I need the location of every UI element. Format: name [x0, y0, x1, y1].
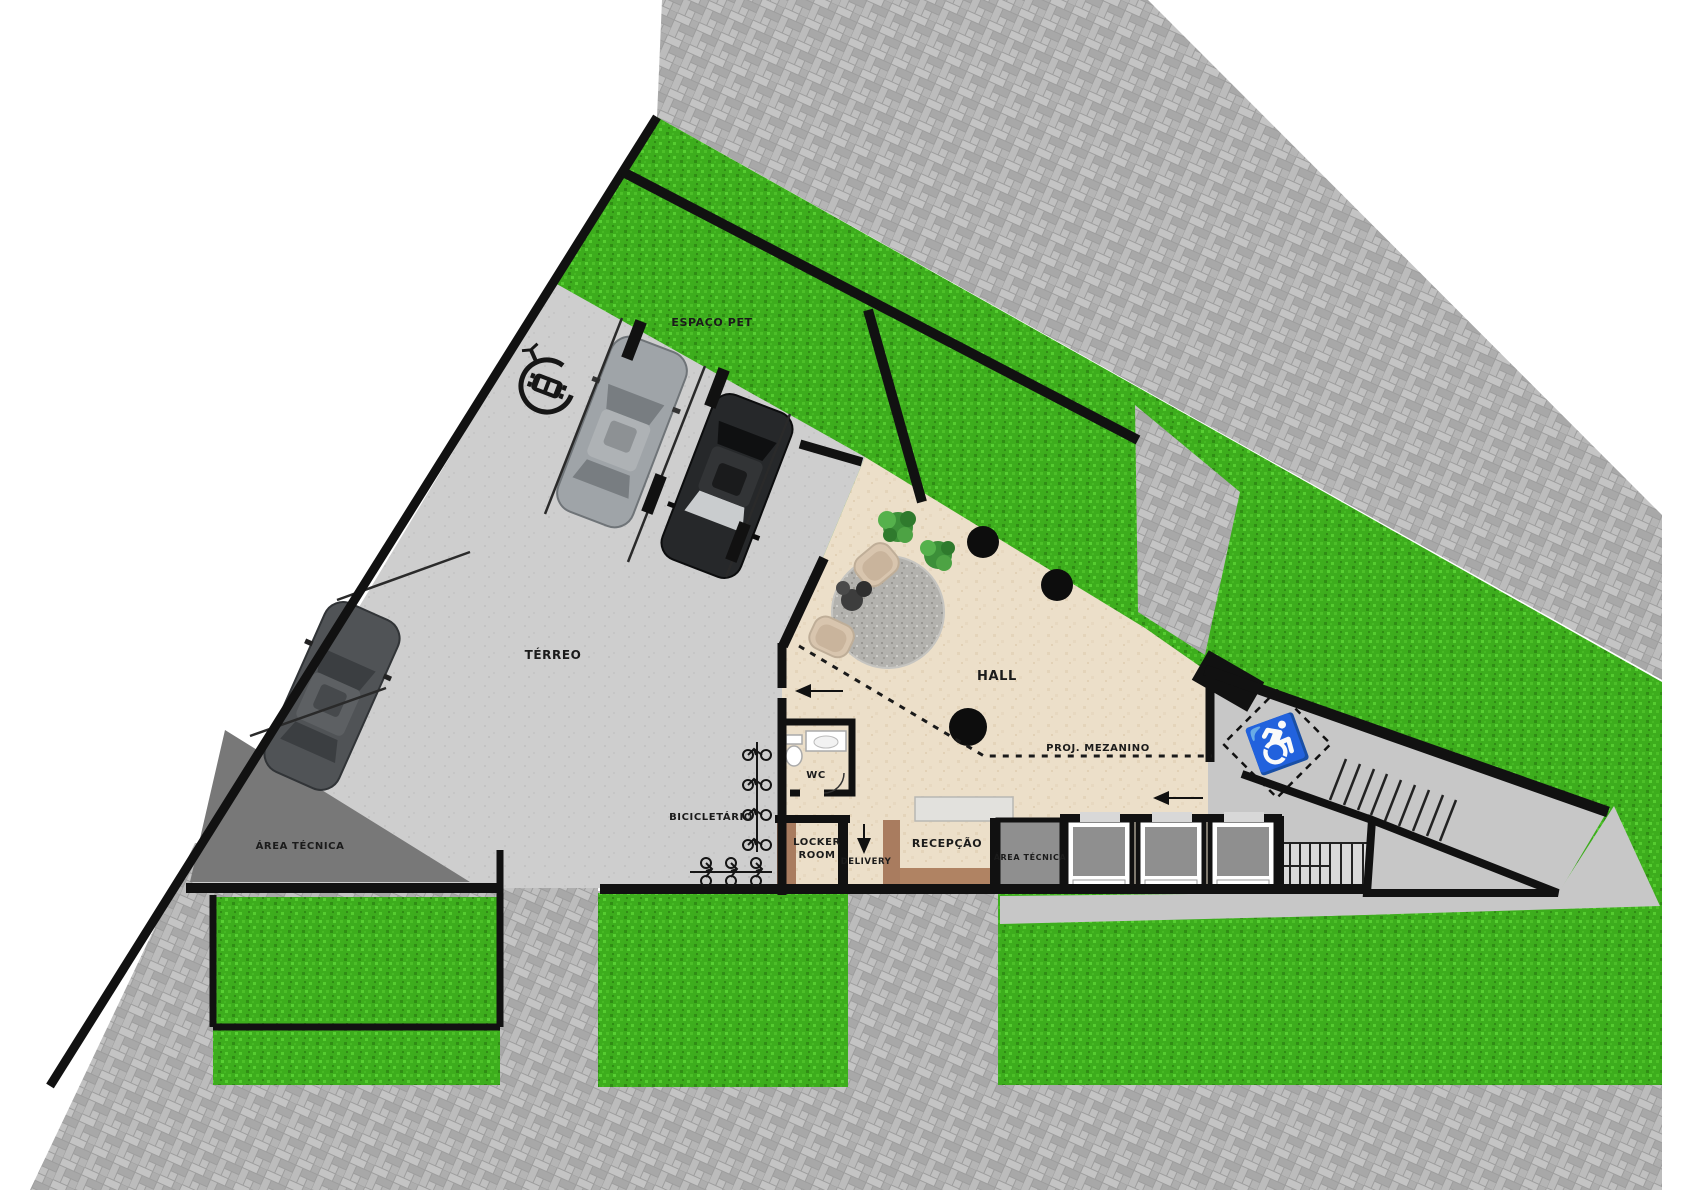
- grass-patch-left: [213, 897, 500, 1085]
- label-area-tecnica-right: ÁREA TÉCNICA: [994, 851, 1067, 862]
- floor-plan-canvas: ♿: [0, 0, 1684, 1190]
- elevator: [1138, 820, 1204, 890]
- label-recepcao: RECEPÇÃO: [912, 837, 982, 850]
- wall-bottom-left: [186, 883, 497, 893]
- elevator: [1210, 820, 1276, 890]
- elevator-bank: [1060, 812, 1282, 890]
- elevator-door-opening: [1152, 812, 1192, 822]
- reception-counter: [915, 797, 1013, 821]
- grass-patch-right: [1000, 908, 1662, 1085]
- label-espaco-pet: ESPAÇO PET: [671, 316, 752, 329]
- label-delivery: DELIVERY: [841, 857, 892, 867]
- label-locker-room: LOCKER: [793, 837, 841, 848]
- label-bicicletario: BICICLETÁRIO: [669, 810, 753, 823]
- label-area-tecnica-left: ÁREA TÉCNICA: [256, 839, 345, 852]
- elevator: [1066, 820, 1132, 890]
- column: [967, 526, 999, 558]
- label-wc: WC: [806, 770, 826, 781]
- label-proj-mezanino: PROJ. MEZANINO: [1046, 743, 1150, 754]
- label-locker-room: ROOM: [798, 850, 835, 861]
- label-terreo: TÉRREO: [525, 647, 582, 662]
- wall-bottom-building: [600, 884, 1370, 894]
- grass-patch-middle: [598, 893, 848, 1087]
- floor-plan-page: ♿: [0, 0, 1684, 1190]
- elevator-door-opening: [1080, 812, 1120, 822]
- wall-locker-right: [838, 818, 848, 893]
- label-hall: HALL: [977, 669, 1017, 684]
- column: [1041, 569, 1073, 601]
- elevator-door-opening: [1224, 812, 1264, 822]
